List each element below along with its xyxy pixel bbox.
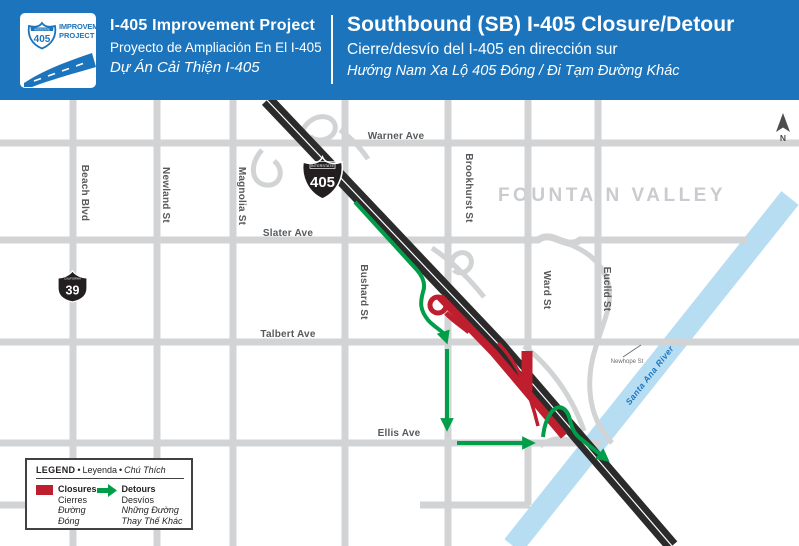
detour-arrow-icon bbox=[97, 484, 117, 497]
label-magnolia: Magnolia St bbox=[236, 167, 247, 226]
label-warner: Warner Ave bbox=[368, 131, 425, 142]
detours-en: Detours bbox=[122, 484, 184, 495]
label-beach: Beach Blvd bbox=[79, 165, 90, 221]
legend-box: LEGEND•Leyenda•Chú Thích Closures Cierre… bbox=[25, 458, 193, 530]
detours-text: Detours Desvíos Những Đường Thay Thế Khá… bbox=[122, 484, 184, 526]
closure-swatch bbox=[36, 485, 53, 495]
label-ward: Ward St bbox=[541, 271, 552, 310]
legend-title-vi: Chú Thích bbox=[124, 465, 166, 475]
project-title-vietnamese: Dự Án Cải Thiện I-405 bbox=[110, 59, 322, 76]
label-talbert: Talbert Ave bbox=[260, 329, 315, 340]
logo-line1: IMPROVEMENT bbox=[59, 22, 96, 31]
legend-closures: Closures Cierres Đường Đóng bbox=[36, 484, 97, 526]
label-newhope: Newhope St bbox=[611, 359, 644, 365]
logo-shield-number: 405 bbox=[34, 34, 51, 45]
project-logo-graphic: INTERSTATE 405 IMPROVEMENT PROJECT bbox=[20, 13, 96, 88]
closure-bar-ward bbox=[522, 351, 533, 391]
closure-title-vietnamese: Hướng Nam Xa Lộ 405 Đóng / Đi Tạm Đường … bbox=[347, 63, 734, 79]
label-slater: Slater Ave bbox=[263, 228, 313, 239]
header-right-block: Southbound (SB) I-405 Closure/Detour Cie… bbox=[347, 13, 734, 79]
label-bushard: Bushard St bbox=[358, 264, 369, 320]
detours-es: Desvíos bbox=[122, 495, 184, 506]
legend-title-es: Leyenda bbox=[82, 465, 117, 475]
closures-es: Cierres bbox=[58, 495, 97, 506]
header-banner: INTERSTATE 405 IMPROVEMENT PROJECT I-405… bbox=[0, 0, 799, 100]
city-label: FOUNTAIN VALLEY bbox=[498, 185, 726, 206]
project-title: I-405 Improvement Project bbox=[110, 17, 322, 35]
river-label: Santa Ana River bbox=[623, 343, 676, 406]
street-slater bbox=[0, 237, 748, 243]
closures-text: Closures Cierres Đường Đóng bbox=[58, 484, 97, 526]
legend-title: LEGEND•Leyenda•Chú Thích bbox=[36, 465, 184, 479]
detours-vi: Những Đường Thay Thế Khác bbox=[122, 505, 184, 526]
closures-en: Closures bbox=[58, 484, 97, 495]
header-divider bbox=[331, 15, 333, 84]
logo-interstate-text: INTERSTATE bbox=[34, 27, 50, 31]
closure-title: Southbound (SB) I-405 Closure/Detour bbox=[347, 13, 734, 37]
project-logo: INTERSTATE 405 IMPROVEMENT PROJECT bbox=[20, 13, 96, 88]
closures-vi: Đường Đóng bbox=[58, 505, 97, 526]
legend-title-en: LEGEND bbox=[36, 465, 75, 475]
shield-number: 405 bbox=[310, 174, 335, 191]
ramp-warner-sw-loop bbox=[253, 150, 280, 185]
legend-detours: Detours Desvíos Những Đường Thay Thế Khá… bbox=[97, 484, 184, 526]
newhope-leader-line bbox=[623, 345, 641, 357]
closure-loop-ramp bbox=[430, 297, 446, 313]
route-shield-number: 39 bbox=[66, 284, 80, 298]
route-39-shield: CALIFORNIA 39 bbox=[58, 271, 87, 302]
street-labels: Warner Ave Slater Ave Talbert Ave Ellis … bbox=[79, 131, 644, 439]
logo-road-swoosh bbox=[24, 53, 96, 87]
logo-shield: INTERSTATE 405 bbox=[29, 23, 56, 49]
north-arrow-icon bbox=[776, 113, 790, 132]
label-brookhurst: Brookhurst St bbox=[463, 153, 474, 223]
label-euclid: Euclid St bbox=[601, 267, 612, 312]
flyer-page: INTERSTATE 405 IMPROVEMENT PROJECT I-405… bbox=[0, 0, 799, 546]
legend-columns: Closures Cierres Đường Đóng Detours Desv… bbox=[36, 484, 184, 526]
north-label: N bbox=[780, 133, 786, 143]
closure-title-spanish: Cierre/desvío del I-405 en dirección sur bbox=[347, 41, 734, 59]
interstate-405-shield: INTERSTATE 405 bbox=[303, 157, 343, 199]
header-left-block: I-405 Improvement Project Proyecto de Am… bbox=[110, 17, 322, 76]
route-shield-state: CALIFORNIA bbox=[64, 277, 81, 281]
logo-road-shape bbox=[24, 53, 96, 87]
label-newland: Newland St bbox=[160, 167, 171, 223]
logo-line2: PROJECT bbox=[59, 31, 95, 40]
shield-interstate-text: INTERSTATE bbox=[311, 164, 335, 168]
project-title-spanish: Proyecto de Ampliación En El I-405 bbox=[110, 40, 322, 55]
detour-map: FOUNTAIN VALLEY bbox=[0, 100, 799, 546]
label-ellis: Ellis Ave bbox=[378, 428, 421, 439]
north-arrow: N bbox=[776, 113, 790, 143]
